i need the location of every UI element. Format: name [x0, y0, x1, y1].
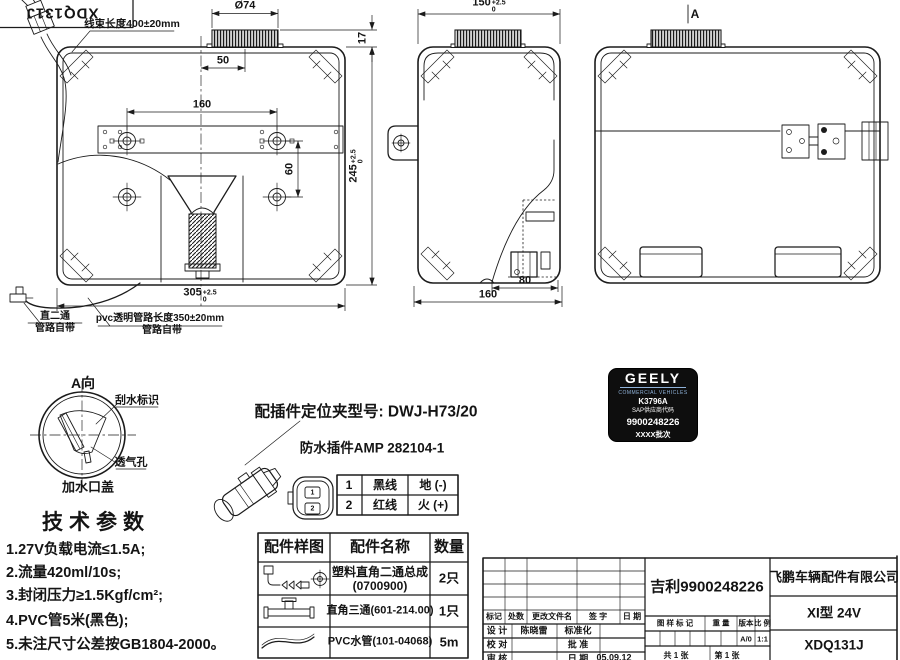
- wiper-mark-label: 刮水标识: [115, 396, 159, 407]
- tech-param-2: 2.流量420ml/10s;: [6, 566, 121, 581]
- tee-thumbnail: [264, 598, 314, 618]
- version-header: 版本: [739, 619, 754, 627]
- drawing-title: 吉利9900248226: [650, 580, 763, 595]
- badge-divider: [620, 387, 686, 388]
- sheet-index: 第 1 张: [715, 652, 740, 660]
- dim-cap-diameter: Ø74: [235, 1, 256, 12]
- mounting-holes: [110, 127, 294, 211]
- pin-1-function: 地 (-): [419, 479, 446, 491]
- parts-header-sample: 配件样图: [264, 540, 324, 555]
- dim-cap-height: 17: [358, 32, 369, 44]
- badge-supplier-label: SAP供应商代码: [632, 408, 674, 416]
- badge-model-code: K3796A: [638, 397, 667, 407]
- parts-header-name: 配件名称: [350, 540, 410, 555]
- plan-view: [10, 0, 377, 326]
- tech-param-4: 4.PVC管5米(黑色);: [6, 614, 128, 629]
- tech-param-5: 5.未注尺寸公差按GB1804-2000。: [6, 638, 225, 653]
- internal-pump-hidden: [508, 200, 556, 277]
- connector-subtitle: 防水插件AMP 282104-1: [300, 441, 445, 455]
- hose-thumbnail: [262, 634, 314, 648]
- rev-header-sign: 签 字: [589, 613, 607, 621]
- dim-front-width: 150+2.50: [472, 0, 505, 14]
- hose-pvc-label-1: pvc透明管路长度350±20mm: [96, 314, 224, 324]
- connector-clip-title: 配插件定位夹型号: DWJ-H73/20: [254, 404, 477, 420]
- hose-straight-label-2: 管路自带: [35, 324, 75, 334]
- dim-plan-width: 305+2.50: [183, 288, 216, 305]
- parts-row3-qty: 5m: [440, 636, 459, 649]
- drawing-sheet: XDQ131J 线束长度400±20mm Ø74 50 17 160 60 30…: [0, 0, 900, 660]
- designer-name: 陈晓雷: [520, 627, 547, 636]
- part-number: XDQ131J: [804, 638, 863, 652]
- face-pin-2: 2: [311, 505, 315, 512]
- front-dimensions: [414, 9, 562, 307]
- dim-hole-span: 160: [193, 100, 211, 111]
- parts-row1-code: (0700900): [353, 580, 408, 592]
- harness-wire: [41, 34, 170, 180]
- version-value: A/0: [740, 635, 752, 643]
- hose-straight-label-1: 直二通: [40, 312, 70, 322]
- mark-header: 图 样 标 记: [657, 619, 693, 627]
- side-bracket: [782, 122, 888, 160]
- pvc-hose: [10, 283, 140, 308]
- date-value: 05.09.12: [596, 654, 631, 660]
- detail-a-title: A向: [71, 376, 95, 390]
- company-name: 飞鹏车辆配件有限公司: [769, 571, 899, 584]
- rev-header-date: 日 期: [623, 613, 641, 621]
- badge-supplier-code: 9900248226: [627, 417, 680, 429]
- date-label: 日 期: [568, 655, 589, 660]
- dim-plan-height: 245+2.50: [349, 149, 366, 182]
- pin-1-no: 1: [346, 479, 353, 491]
- product-model: XI型 24V: [807, 606, 861, 620]
- view-marker-a: A: [691, 8, 700, 20]
- pin-2-function: 火 (+): [418, 499, 448, 511]
- filler-cap-label: 加水口盖: [62, 481, 114, 494]
- approve-label: 批 准: [568, 641, 589, 650]
- weight-header: 重 量: [712, 619, 729, 627]
- pump-assembly: [161, 176, 243, 282]
- tech-params-title: 技术参数: [42, 512, 150, 533]
- elbow-thumbnail: [264, 566, 329, 589]
- parts-row1-qty: 2只: [439, 572, 459, 585]
- hose-pvc-label-2: 管路自带: [142, 326, 182, 336]
- rev-header-count: 处数: [508, 613, 524, 621]
- pin-2-wire: 红线: [373, 499, 397, 511]
- rev-header-mark: 标记: [486, 613, 502, 621]
- harness-length-label: 线束长度400±20mm: [84, 19, 180, 30]
- mounting-tab: [388, 126, 418, 160]
- front-view: [388, 9, 562, 307]
- badge-batch: XXXX批次: [635, 430, 670, 439]
- dim-front-base: 160: [479, 290, 497, 301]
- badge-tagline: COMMERCIAL VEHICLES: [618, 390, 687, 396]
- pin-1-wire: 黑线: [373, 479, 397, 491]
- audit-label: 审 核: [487, 655, 508, 660]
- scale-value: 1:1: [757, 635, 768, 643]
- tech-param-3: 3.封闭压力≥1.5Kgf/cm²;: [6, 589, 163, 604]
- side-view: [595, 5, 888, 283]
- dim-cap-offset: 50: [217, 56, 229, 67]
- badge-brand: GEELY: [625, 371, 681, 385]
- design-label: 设 计: [487, 627, 508, 636]
- plan-leaders: [24, 31, 222, 326]
- geely-badge: GEELY COMMERCIAL VEHICLES K3796A SAP供应商代…: [608, 368, 698, 442]
- parts-row1-name: 塑料直角二通总成: [332, 566, 428, 578]
- dim-pump-offset: 80: [519, 276, 531, 287]
- scale-header: 比 例: [754, 619, 771, 627]
- check-label: 校 对: [487, 641, 508, 650]
- rev-header-file: 更改文件名: [532, 613, 572, 621]
- parts-row3-name: PVC水管(101-04068): [328, 637, 433, 648]
- face-pin-1: 1: [311, 489, 315, 496]
- tech-param-1: 1.27V负载电流≤1.5A;: [6, 543, 145, 558]
- pin-2-no: 2: [346, 499, 353, 511]
- cad-line-art: [0, 0, 900, 660]
- vent-hole-label: 透气孔: [115, 458, 148, 469]
- standardization-label: 标准化: [564, 627, 591, 636]
- parts-row2-name: 直角三通(601-214.00): [327, 606, 434, 617]
- parts-row2-qty: 1只: [439, 605, 459, 618]
- parts-header-qty: 数量: [434, 540, 464, 555]
- sheet-total: 共 1 张: [664, 652, 689, 660]
- dim-hole-pitch: 60: [285, 163, 296, 175]
